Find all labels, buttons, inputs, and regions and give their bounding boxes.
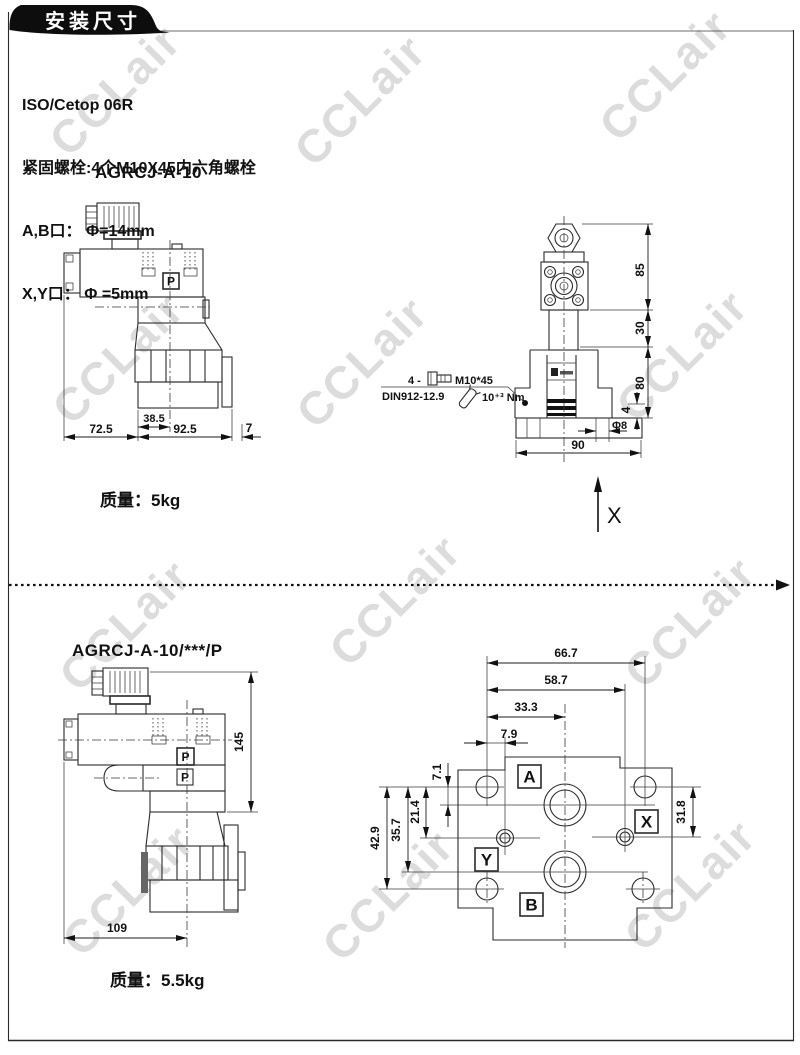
dimensions: 145 109 [64, 672, 258, 944]
socket-bolt-icon [428, 372, 451, 385]
dim-7-9: 7.9 [501, 727, 518, 741]
dim-7: 7 [246, 421, 253, 435]
port-label-b: B [525, 896, 537, 915]
port-label-a: A [523, 768, 535, 787]
port-label-x: X [641, 813, 653, 832]
dim-80: 80 [633, 376, 647, 390]
bolt-spec-label: M10*45 [455, 375, 493, 387]
dim-hole-dia: Φ8 [612, 420, 627, 432]
section-divider [9, 580, 790, 591]
din-standard-label: DIN912-12.9 [382, 391, 444, 403]
axis-x-label: X [607, 503, 622, 528]
mass-label-valve1: 质量：5kg [100, 486, 180, 511]
dim-30: 30 [633, 321, 647, 335]
model-label-valve1: AGRCJ-A-10 [95, 163, 202, 183]
dim-7-1: 7.1 [430, 763, 444, 780]
dim-92-5: 92.5 [173, 422, 197, 436]
wrench-icon [456, 385, 480, 411]
flange [541, 262, 588, 310]
dim-35-7: 35.7 [389, 818, 403, 842]
dim-4: 4 [619, 406, 633, 413]
dim-109: 109 [107, 921, 127, 935]
valve1-front-view: 4 - M10*45 DIN912-12.9 10⁺³ Nm [381, 216, 653, 532]
spec-line-xy-ports: X,Y口： Φ =5mm [22, 284, 256, 305]
dim-66-7: 66.7 [554, 646, 578, 660]
header-banner: 安装尺寸 [10, 5, 171, 35]
port-label-p1: P [181, 750, 189, 764]
spec-block: ISO/Cetop 06R 紧固螺栓:4个M10X45内六角螺栓 A,B口： Φ… [22, 53, 256, 347]
dim-90: 90 [571, 438, 585, 452]
page-title: 安装尺寸 [45, 9, 141, 33]
dim-72-5: 72.5 [89, 422, 113, 436]
model-label-valve2: AGRCJ-A-10/***/P [72, 641, 223, 661]
spec-line-ab-ports: A,B口： Φ=14mm [22, 221, 256, 242]
valve2-mounting-face: A X Y B 66.7 58.7 33.3 7.9 [368, 646, 701, 948]
solenoid-body: P [64, 709, 225, 765]
x-axis-arrow: X [594, 476, 622, 532]
spec-line-standard: ISO/Cetop 06R [22, 95, 256, 116]
dim-21-4: 21.4 [408, 800, 422, 824]
valve2-side-view: P P [58, 668, 258, 950]
bolt-qty-label: 4 - [408, 375, 421, 387]
dim-31-8: 31.8 [674, 800, 688, 824]
dim-58-7: 58.7 [544, 673, 568, 687]
dim-42-9: 42.9 [368, 826, 382, 850]
dim-85: 85 [633, 263, 647, 277]
dim-145: 145 [232, 732, 246, 752]
valve-lower-body [141, 791, 245, 912]
centerlines [379, 656, 701, 948]
dim-38-5: 38.5 [143, 413, 164, 425]
port-label-p2: P [181, 771, 189, 785]
dim-33-3: 33.3 [514, 700, 538, 714]
port-label-y: Y [481, 851, 493, 870]
datasheet-page: CCLair CCLair CCLair CCLair CCLair CCLai… [0, 0, 800, 1055]
din-connector [92, 668, 150, 714]
bolt-torque-note: 4 - M10*45 DIN912-12.9 10⁺³ Nm [381, 372, 528, 411]
mass-label-valve2: 质量：5.5kg [110, 966, 204, 991]
pilot-stage: P [94, 765, 225, 791]
torque-label: 10⁺³ Nm [482, 392, 525, 404]
